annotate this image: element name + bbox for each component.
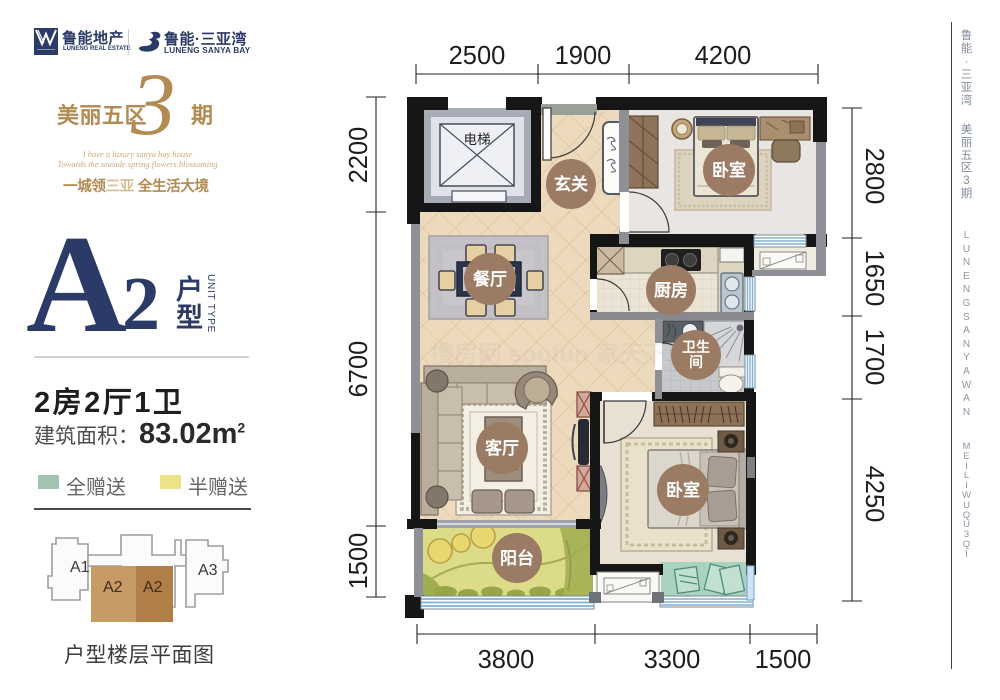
svg-text:1900: 1900 [555,42,612,70]
svg-text:卧室: 卧室 [666,480,700,500]
svg-text:客厅: 客厅 [484,438,519,458]
svg-text:1650: 1650 [860,250,888,307]
svg-text:厨房: 厨房 [654,280,688,300]
svg-text:搜房网 soufun 家天下: 搜房网 soufun 家天下 [430,340,667,368]
svg-text:2200: 2200 [345,127,373,184]
svg-text:4250: 4250 [860,466,888,523]
svg-text:卧室: 卧室 [712,160,746,180]
svg-text:4200: 4200 [695,42,752,70]
svg-text:1500: 1500 [755,646,812,674]
svg-text:2500: 2500 [449,42,506,70]
svg-text:3300: 3300 [644,646,701,674]
svg-text:阳台: 阳台 [500,548,534,568]
svg-text:1700: 1700 [860,329,888,386]
svg-text:电梯: 电梯 [464,132,491,147]
svg-text:3800: 3800 [478,646,535,674]
svg-text:2800: 2800 [860,148,888,205]
svg-text:玄关: 玄关 [554,174,588,194]
svg-text:餐厅: 餐厅 [473,269,507,289]
svg-text:间: 间 [689,354,703,370]
svg-text:6700: 6700 [345,341,373,398]
svg-text:1500: 1500 [345,533,373,590]
svg-text:卫生: 卫生 [682,339,710,355]
